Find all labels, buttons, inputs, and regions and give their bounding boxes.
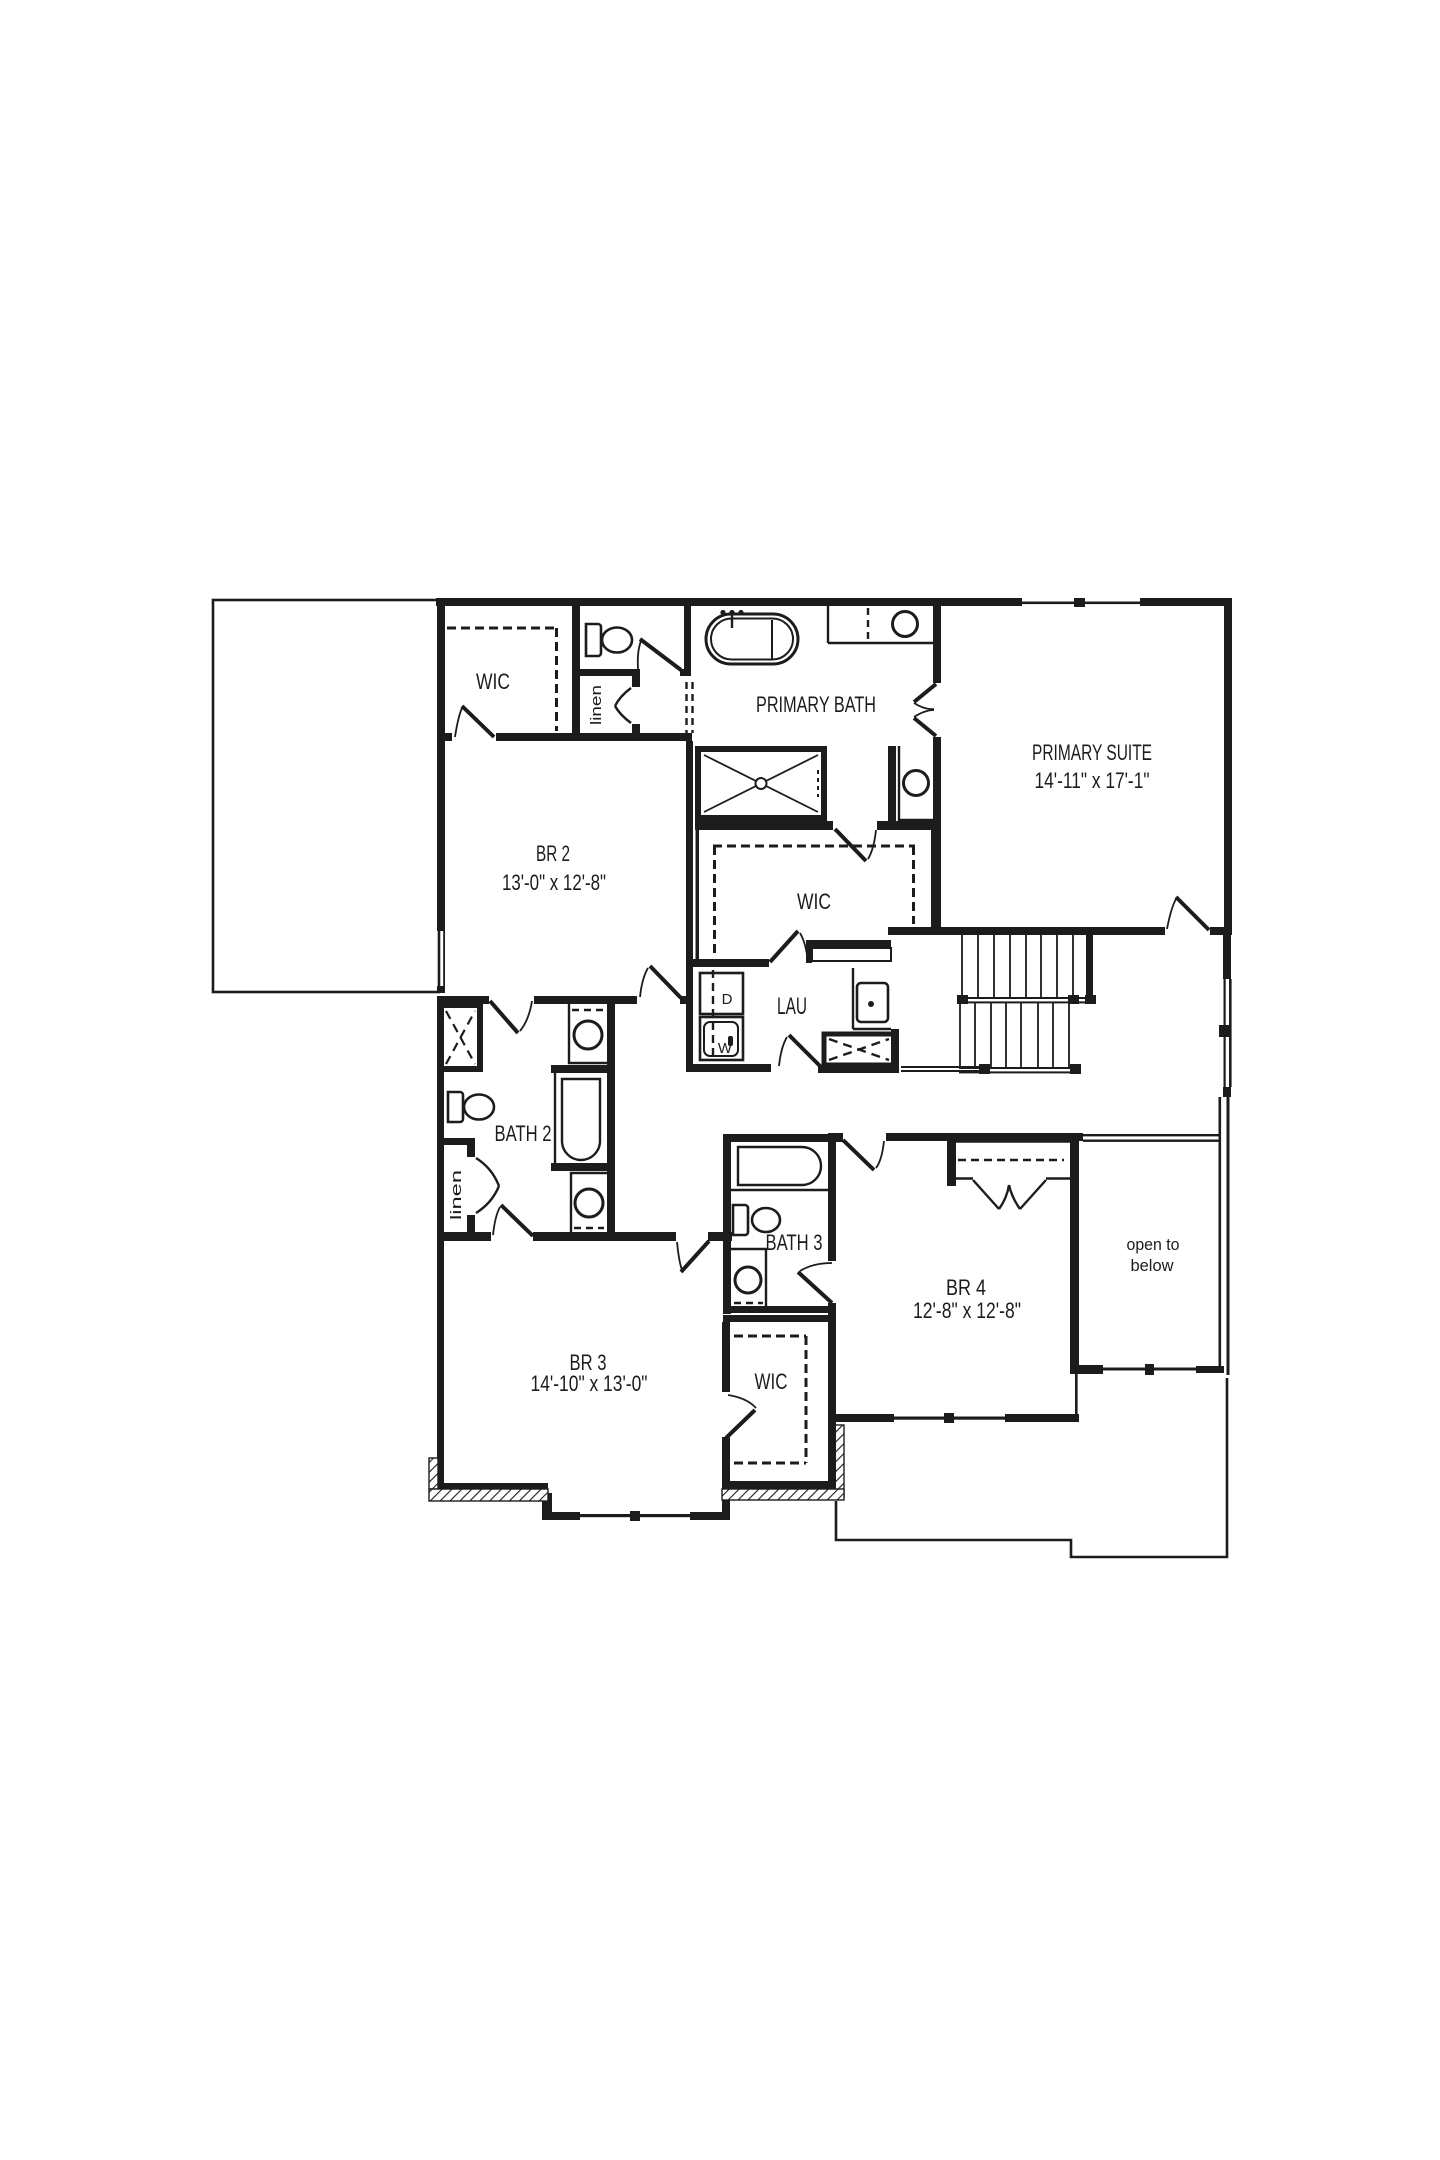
svg-text:D: D xyxy=(722,991,733,1008)
svg-text:PRIMARY SUITE: PRIMARY SUITE xyxy=(1032,740,1152,765)
svg-text:BATH 2: BATH 2 xyxy=(495,1121,552,1146)
svg-text:BR 2: BR 2 xyxy=(536,841,570,866)
svg-text:14'-11" x 17'-1": 14'-11" x 17'-1" xyxy=(1035,768,1150,793)
svg-text:13'-0" x 12'-8": 13'-0" x 12'-8" xyxy=(502,870,606,895)
svg-text:BATH 3: BATH 3 xyxy=(766,1230,823,1255)
svg-text:WIC: WIC xyxy=(797,889,831,914)
svg-text:12'-8" x 12'-8": 12'-8" x 12'-8" xyxy=(913,1298,1021,1323)
svg-text:linen: linen xyxy=(588,685,605,725)
svg-text:below: below xyxy=(1131,1256,1175,1275)
svg-text:PRIMARY BATH: PRIMARY BATH xyxy=(756,692,876,717)
svg-text:LAU: LAU xyxy=(777,993,807,1020)
svg-text:WIC: WIC xyxy=(476,669,510,694)
svg-text:14'-10" x 13'-0": 14'-10" x 13'-0" xyxy=(531,1371,648,1396)
svg-text:open to: open to xyxy=(1127,1235,1180,1254)
svg-text:WIC: WIC xyxy=(755,1369,788,1394)
svg-text:BR 4: BR 4 xyxy=(946,1275,986,1300)
svg-text:linen: linen xyxy=(448,1170,465,1220)
